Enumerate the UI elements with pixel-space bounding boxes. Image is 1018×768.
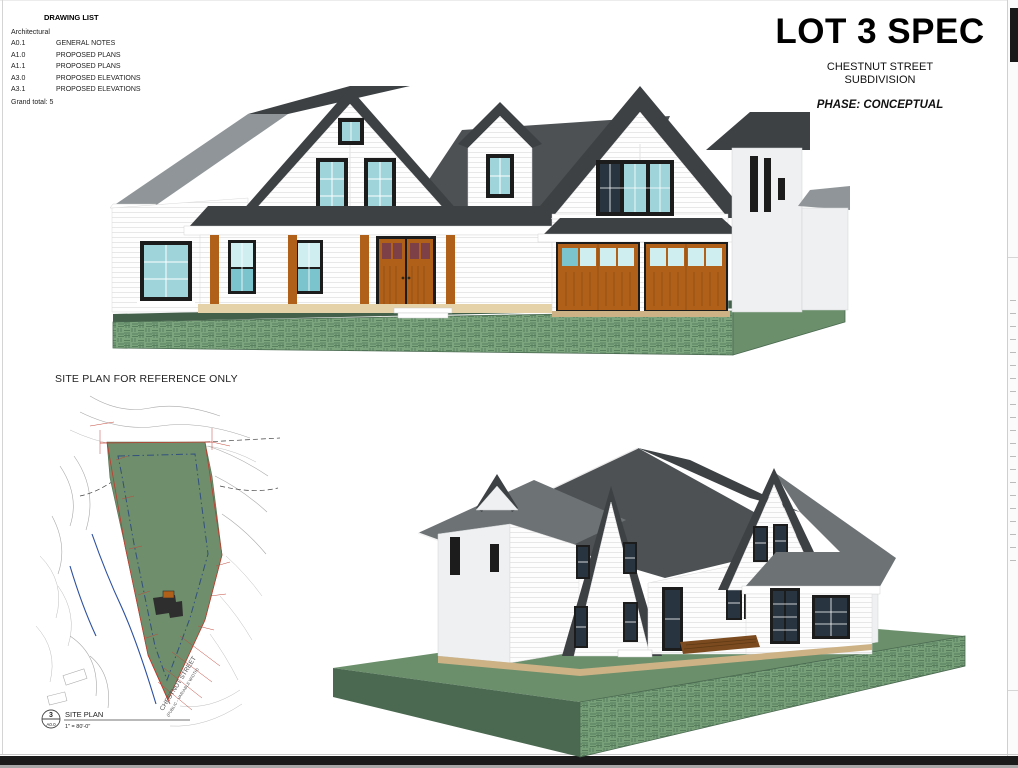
sheet-name: PROPOSED PLANS bbox=[56, 61, 121, 73]
page-left-border bbox=[2, 0, 3, 754]
rear-door bbox=[662, 587, 683, 651]
french-door bbox=[770, 588, 800, 644]
porch-floor bbox=[198, 304, 558, 313]
garage-door bbox=[556, 242, 640, 312]
drawing-list-row: A0.1 GENERAL NOTES bbox=[11, 38, 176, 50]
window bbox=[623, 542, 637, 574]
callout-title: SITE PLAN bbox=[65, 710, 103, 719]
window bbox=[228, 240, 256, 294]
front-steps bbox=[394, 308, 452, 318]
sheet-code: A3.0 bbox=[11, 73, 56, 85]
sheet-name: GENERAL NOTES bbox=[56, 38, 115, 50]
subdivision-line1: CHESTNUT STREET bbox=[760, 61, 1000, 74]
sheet-code: A1.0 bbox=[11, 50, 56, 62]
adjacent-page-tick-marks bbox=[1010, 300, 1016, 562]
drawing-list-row: A1.0 PROPOSED PLANS bbox=[11, 50, 176, 62]
sheet-name: PROPOSED PLANS bbox=[56, 50, 121, 62]
callout-sheet: A0.0 bbox=[46, 722, 56, 727]
drawing-list-title: DRAWING LIST bbox=[44, 12, 176, 24]
garage-hip-roof bbox=[542, 218, 742, 236]
window bbox=[483, 154, 517, 202]
adjacent-page-line bbox=[1008, 690, 1018, 691]
callout-scale: 1" = 80'-0" bbox=[65, 724, 90, 730]
front-door bbox=[376, 236, 436, 308]
sheet-cover-page: { "titleblock": { "title": "LOT 3 SPEC",… bbox=[0, 0, 1018, 768]
garage-wing bbox=[530, 86, 750, 317]
window bbox=[623, 602, 638, 642]
front-porch bbox=[184, 206, 562, 318]
rear-exterior-rendering bbox=[330, 428, 975, 760]
drawing-list-section: Architectural bbox=[11, 27, 176, 39]
adjacent-page-dark-edge bbox=[1010, 8, 1018, 62]
adjacent-page-line bbox=[1008, 257, 1018, 258]
site-plan-heading: SITE PLAN FOR REFERENCE ONLY bbox=[55, 373, 238, 385]
page-right-border bbox=[1007, 0, 1008, 756]
drawing-list-row: A1.1 PROPOSED PLANS bbox=[11, 61, 176, 73]
callout-number: 3 bbox=[49, 712, 53, 719]
page-top-edge bbox=[0, 0, 1018, 1]
project-title: LOT 3 SPEC bbox=[760, 12, 1000, 52]
porch-post bbox=[288, 235, 297, 307]
window bbox=[576, 545, 590, 579]
triple-window bbox=[596, 160, 674, 216]
lot-parcel bbox=[107, 442, 222, 700]
rear-porch bbox=[742, 552, 880, 654]
porch-post bbox=[446, 235, 455, 307]
window bbox=[295, 240, 323, 294]
garage-apron bbox=[552, 311, 730, 317]
garage-door bbox=[644, 242, 728, 312]
front-exterior-rendering bbox=[110, 78, 850, 363]
attic-window bbox=[338, 118, 364, 145]
porch-post bbox=[360, 235, 369, 307]
sheet-code: A0.1 bbox=[11, 38, 56, 50]
window bbox=[812, 595, 850, 639]
sheet-code: A3.1 bbox=[11, 84, 56, 96]
window bbox=[574, 606, 588, 648]
porch-post bbox=[210, 235, 219, 307]
window bbox=[137, 241, 195, 305]
sheet-code: A1.1 bbox=[11, 61, 56, 73]
site-plan-drawing: CHESTNUT STREET (PUBLIC - VARIABLE WIDTH… bbox=[30, 386, 285, 748]
